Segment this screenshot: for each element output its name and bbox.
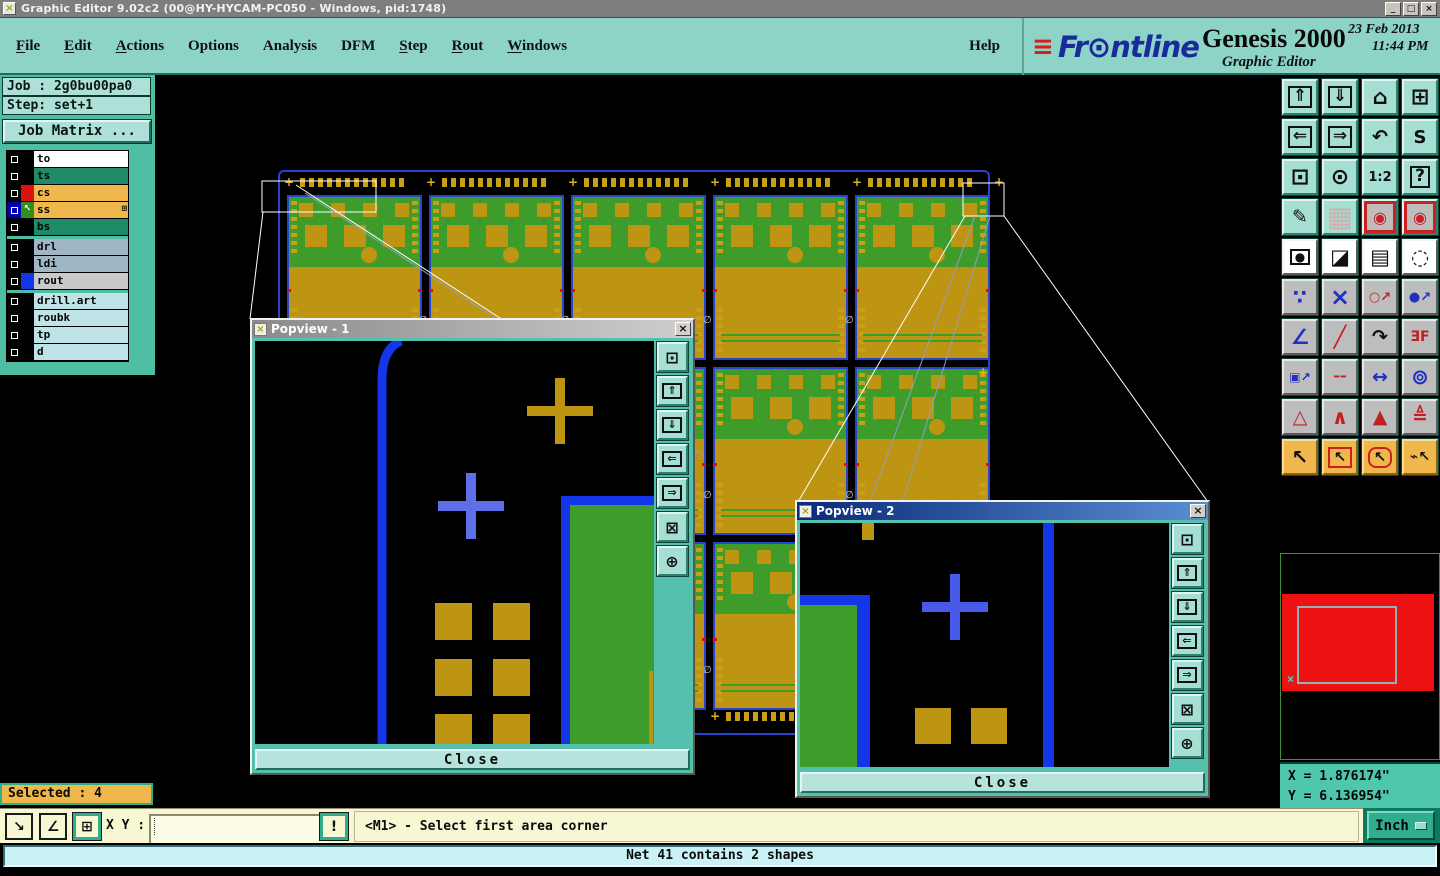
layer-visibility-checkbox[interactable] (7, 239, 21, 255)
layer-name: bs (34, 219, 128, 235)
active-layer-cursor-icon: ↖ (21, 202, 34, 218)
view-outline (1297, 606, 1397, 684)
origin-marker: × (1287, 672, 1294, 686)
layer-name: cs (34, 185, 128, 201)
layer-group: totscs↖ss⊞bs (7, 151, 128, 239)
layer-name: to (34, 151, 128, 167)
copy-screen-icon: ⇑ (1288, 86, 1312, 108)
surface-ops-button[interactable]: ⊚ (1402, 359, 1438, 395)
pan-right-button[interactable]: ⇒ (657, 478, 688, 508)
select-cross-marker (438, 473, 504, 539)
window-controls: _□× (1385, 2, 1440, 16)
snap-angle-button[interactable]: ∠ (39, 813, 67, 840)
pan-up-icon: ⇑ (1177, 565, 1196, 581)
brand-area: ≡ Fr⊙ntline Genesis 2000 23 Feb 2013 11:… (1026, 18, 1440, 75)
layer-visibility-checkbox[interactable] (7, 327, 21, 343)
frontline-logo: Fr⊙ntline (1058, 30, 1199, 64)
input-caret (154, 818, 155, 835)
menu-actions[interactable]: Actions (116, 38, 164, 55)
popview2-title: Popview - 2 (816, 504, 894, 518)
product-name: Genesis 2000 (1202, 24, 1346, 54)
pan-left-button[interactable]: ⇐ (657, 444, 688, 474)
pan-down-button[interactable]: ⇓ (1172, 592, 1203, 622)
layer-visibility-checkbox[interactable] (7, 202, 21, 218)
menu-analysis[interactable]: Analysis (263, 38, 317, 55)
screen-capture-button[interactable]: ⇓ (1322, 79, 1358, 115)
layer-row-bs[interactable]: bs (7, 219, 128, 235)
layer-color-swatch (21, 344, 34, 360)
menu-step[interactable]: Step (399, 38, 427, 55)
profile-path-icon: S (1414, 127, 1427, 148)
layer-row-d[interactable]: d (7, 344, 128, 360)
option-menu-icon (1415, 822, 1427, 830)
frontline-speedlines-icon: ≡ (1032, 32, 1054, 62)
grid-snap-button[interactable]: ⊞ (73, 813, 101, 840)
menu-bar: FileEditActionsOptionsAnalysisDFMStepRou… (0, 18, 1024, 75)
pad-square (435, 603, 472, 640)
menu-dfm[interactable]: DFM (341, 38, 375, 55)
select-single-button[interactable]: ↖ (1282, 439, 1318, 475)
close-button[interactable]: Close (800, 772, 1205, 793)
context-help-button[interactable]: ? (1402, 159, 1438, 195)
select-cross-marker (922, 574, 988, 640)
draw-slope-button[interactable]: ╱ (1322, 319, 1358, 355)
previous-view-icon: ↶ (1372, 126, 1388, 148)
zoom-center-icon: ⊕ (665, 552, 678, 571)
close-icon[interactable]: × (1421, 2, 1437, 16)
layer-visibility-checkbox[interactable] (7, 310, 21, 326)
popview1-title: Popview - 1 (271, 322, 349, 336)
delete-feature-icon: × (1330, 283, 1350, 311)
application-window: × Graphic Editor 9.02c2 (00@HY-HYCAM-PC0… (0, 0, 1440, 876)
zoom-fit-icon: ⊠ (1180, 700, 1193, 719)
copy-to-layer-button[interactable]: ▣↗ (1282, 359, 1318, 395)
add-triangle-axis-icon: ≜ (1412, 406, 1428, 428)
popview1-canvas[interactable] (255, 341, 654, 744)
zoom-center-button[interactable]: ⊙ (1322, 159, 1358, 195)
pan-down-icon: ⇓ (662, 417, 681, 433)
snap-diagonal-button[interactable]: ↘ (5, 813, 33, 840)
split-view-xy-icon: ⊞ (1411, 85, 1429, 110)
zoom-center-button[interactable]: ⊕ (1172, 728, 1203, 758)
layer-color-swatch (21, 168, 34, 184)
layer-group: drlldirout (7, 239, 128, 293)
layer-row-to[interactable]: to (7, 151, 128, 167)
pan-left-button[interactable]: ⇐ (1282, 119, 1318, 155)
app-icon: × (3, 2, 16, 15)
pad-square (971, 708, 1007, 744)
detach-view-button[interactable]: ⊡ (657, 342, 688, 372)
rout-bar (1043, 523, 1054, 767)
rotate-feature-button[interactable]: ↷ (1362, 319, 1398, 355)
alert-button[interactable]: ! (320, 813, 348, 840)
layer-visibility-checkbox[interactable] (7, 344, 21, 360)
net-highlight-icon: ◉ (1413, 208, 1427, 227)
line-style-icon: ╌ (1333, 365, 1346, 390)
layer-visibility-checkbox[interactable] (7, 256, 21, 272)
select-net-button[interactable]: ⌁↖ (1402, 439, 1438, 475)
right-toolbar: ⇑⇓⌂⊞⇐⇒↶S⊡⊙1:2?✎▦◉◉●◪▤◌∵×○↗●↗∠╱↷ƎF▣↗╌↔⊚△∧… (1280, 75, 1440, 808)
add-triangle-outline-button[interactable]: △ (1282, 399, 1318, 435)
popview2-toolbar: ⊡⇑⇓⇐⇒⊠⊕ (1169, 523, 1205, 767)
net-info-message: Net 41 contains 2 shapes (3, 845, 1437, 867)
close-icon[interactable]: × (675, 322, 691, 336)
zoom-ratio-1-2-button[interactable]: 1:2 (1362, 159, 1398, 195)
layer-visibility-checkbox[interactable] (7, 293, 21, 309)
pan-right-button[interactable]: ⇒ (1172, 660, 1203, 690)
zoom-center-icon: ⊕ (1180, 734, 1193, 753)
step-label: Step: set+1 (2, 96, 151, 115)
layer-color-swatch (21, 239, 34, 255)
layer-name: d (34, 344, 128, 360)
xy-input[interactable] (149, 814, 327, 845)
menu-options[interactable]: Options (188, 38, 239, 55)
screen-capture-icon: ⇓ (1328, 86, 1352, 108)
popview-window-1[interactable]: × Popview - 1 × (250, 318, 695, 775)
layer-row-ss[interactable]: ↖ss⊞ (7, 202, 128, 218)
home-view-button[interactable]: ⌂ (1362, 79, 1398, 115)
measure-angle-icon: ∠ (1291, 325, 1310, 349)
add-chevron-icon: ∧ (1332, 405, 1348, 429)
menu-help[interactable]: Help (969, 38, 1000, 55)
detach-view-icon: ⊡ (1180, 530, 1193, 549)
add-triangle-axis-button[interactable]: ≜ (1402, 399, 1438, 435)
add-chevron-button[interactable]: ∧ (1322, 399, 1358, 435)
zoom-center-button[interactable]: ⊕ (657, 546, 688, 576)
layer-compare-button[interactable]: ◪ (1322, 239, 1358, 275)
zoom-fit-icon: ⊡ (1291, 165, 1309, 190)
pad-square (435, 714, 472, 744)
gold-tab (862, 523, 874, 540)
layer-name: drl (34, 239, 128, 255)
rout-outline (857, 595, 870, 767)
window-title: Graphic Editor 9.02c2 (00@HY-HYCAM-PC050… (21, 2, 446, 15)
select-polygon-icon: ↖ (1368, 447, 1393, 468)
layer-compare-icon: ◪ (1330, 245, 1350, 269)
split-view-xy-button[interactable]: ⊞ (1402, 79, 1438, 115)
pan-up-button[interactable]: ⇑ (657, 376, 688, 406)
job-label: Job : 2g0bu00pa0 (2, 77, 151, 96)
pan-left-button[interactable]: ⇐ (1172, 626, 1203, 656)
select-rectangle-button[interactable]: ↖ (1322, 439, 1358, 475)
select-net-icon: ⌁↖ (1410, 449, 1430, 465)
popview-icon: × (254, 323, 267, 336)
popview-window-2[interactable]: × Popview - 2 × ⊡⇑⇓⇐⇒⊠⊕ (795, 500, 1210, 798)
layer-row-drill.art[interactable]: drill.art (7, 293, 128, 309)
pad-square (435, 659, 472, 696)
add-triangle-outline-icon: △ (1293, 406, 1308, 428)
zoom-fit-icon: ⊠ (665, 518, 678, 537)
popview1-toolbar: ⊡⇑⇓⇐⇒⊠⊕ (654, 341, 690, 744)
gold-cross-marker (527, 378, 593, 444)
detach-view-button[interactable]: ⊡ (1172, 524, 1203, 554)
layer-row-ldi[interactable]: ldi (7, 256, 128, 272)
menu-windows[interactable]: Windows (507, 38, 567, 55)
pad-square (493, 603, 530, 640)
zoom-fit-button[interactable]: ⊡ (1282, 159, 1318, 195)
pad-capture-icon: ◌ (1411, 245, 1429, 269)
pan-up-icon: ⇑ (662, 383, 681, 399)
layer-color-swatch (21, 327, 34, 343)
edit-tools-button[interactable]: ✎ (1282, 199, 1318, 235)
layer-row-tp[interactable]: tp (7, 327, 128, 343)
copy-point-button[interactable]: ●↗ (1402, 279, 1438, 315)
main-canvas[interactable]: ∅∅∅∅∅∅∅∅∅∅∅∅+++++++++++++++ × Popview - … (155, 75, 1280, 808)
draw-slope-icon: ╱ (1334, 325, 1347, 349)
pan-left-icon: ⇐ (1288, 126, 1312, 148)
layer-list: totscs↖ss⊞bsdrlldiroutdrill.artroubktpd (6, 150, 129, 362)
layer-color-swatch (21, 273, 34, 289)
layer-color-swatch (21, 151, 34, 167)
copper-region (570, 505, 654, 744)
pan-right-icon: ⇒ (662, 485, 681, 501)
add-triangle-filled-button[interactable]: ▲ (1362, 399, 1398, 435)
pad-square (493, 714, 530, 744)
surface-ops-icon: ⊚ (1411, 365, 1429, 389)
close-icon[interactable]: × (1190, 504, 1206, 518)
layer-name: rout (34, 273, 128, 289)
mirror-feature-button[interactable]: ƎF (1402, 319, 1438, 355)
top-bar: FileEditActionsOptionsAnalysisDFMStepRou… (0, 18, 1440, 75)
minimize-icon[interactable]: _ (1385, 2, 1401, 16)
add-triangle-filled-icon: ▲ (1373, 406, 1388, 428)
layer-visibility-checkbox[interactable] (7, 185, 21, 201)
layer-visibility-checkbox[interactable] (7, 219, 21, 235)
layer-name: tp (34, 327, 128, 343)
pan-down-button[interactable]: ⇓ (657, 410, 688, 440)
measure-angle-button[interactable]: ∠ (1282, 319, 1318, 355)
pan-right-icon: ⇒ (1328, 126, 1352, 148)
layer-color-swatch (21, 185, 34, 201)
close-button[interactable]: Close (255, 749, 690, 770)
tool-grid: ⇑⇓⌂⊞⇐⇒↶S⊡⊙1:2?✎▦◉◉●◪▤◌∵×○↗●↗∠╱↷ƎF▣↗╌↔⊚△∧… (1280, 77, 1440, 477)
prompt-message: <M1> - Select first area corner (354, 811, 1359, 842)
measure-ruler-button[interactable]: ▤ (1362, 239, 1398, 275)
measure-ruler-icon: ▤ (1370, 245, 1390, 269)
profile-path-button[interactable]: S (1402, 119, 1438, 155)
pan-right-icon: ⇒ (1177, 667, 1196, 683)
menu-rout[interactable]: Rout (452, 38, 484, 55)
layer-color-swatch (21, 310, 34, 326)
select-rectangle-icon: ↖ (1328, 447, 1353, 468)
xy-label: X Y : (106, 818, 145, 833)
previous-view-button[interactable]: ↶ (1362, 119, 1398, 155)
cross-probe-button[interactable]: ◉ (1362, 199, 1398, 235)
grid-mark-icon: ⊞ (122, 204, 127, 214)
measure-width-button[interactable]: ↔ (1362, 359, 1398, 395)
popview1-titlebar[interactable]: × Popview - 1 × (252, 320, 693, 338)
zoom-ratio-1-2-icon: 1:2 (1368, 170, 1391, 185)
sidebar: Job : 2g0bu00pa0 Step: set+1 Job Matrix … (0, 75, 155, 375)
select-single-icon: ↖ (1292, 445, 1309, 469)
detach-view-icon: ⊡ (665, 348, 678, 367)
layer-row-drl[interactable]: drl (7, 239, 128, 255)
select-feature-button[interactable]: ● (1282, 239, 1318, 275)
date-display: 23 Feb 2013 (1348, 22, 1420, 38)
net-endpoints-icon: ∵ (1293, 285, 1307, 309)
copy-screen-button[interactable]: ⇑ (1282, 79, 1318, 115)
select-polygon-button[interactable]: ↖ (1362, 439, 1398, 475)
grid-toggle-button[interactable]: ▦ (1322, 199, 1358, 235)
delete-feature-button[interactable]: × (1322, 279, 1358, 315)
copy-to-layer-icon: ▣↗ (1289, 370, 1310, 384)
layer-name: ss⊞ (34, 202, 128, 218)
rotate-feature-icon: ↷ (1372, 326, 1388, 348)
context-help-icon: ? (1410, 166, 1430, 188)
overview-preview[interactable]: × (1280, 553, 1440, 760)
message-bar: Net 41 contains 2 shapes (0, 843, 1440, 870)
menu-file[interactable]: File (16, 38, 40, 55)
restore-icon[interactable]: □ (1403, 2, 1419, 16)
pan-right-button[interactable]: ⇒ (1322, 119, 1358, 155)
copper-region (800, 605, 857, 767)
pan-left-icon: ⇐ (662, 451, 681, 467)
edit-tools-icon: ✎ (1292, 206, 1308, 228)
selected-count-badge: Selected : 4 (0, 783, 153, 805)
select-feature-icon: ● (1290, 249, 1310, 266)
time-display: 11:44 PM (1372, 39, 1428, 55)
pad-capture-button[interactable]: ◌ (1402, 239, 1438, 275)
menu-edit[interactable]: Edit (64, 38, 92, 55)
zoom-center-icon: ⊙ (1331, 165, 1349, 190)
measure-width-icon: ↔ (1372, 366, 1388, 388)
layer-name: ts (34, 168, 128, 184)
zoom-fit-button[interactable]: ⊠ (1172, 694, 1203, 724)
pan-left-icon: ⇐ (1177, 633, 1196, 649)
popview2-titlebar[interactable]: × Popview - 2 × (797, 502, 1208, 520)
layer-row-ts[interactable]: ts (7, 168, 128, 184)
move-point-button[interactable]: ○↗ (1362, 279, 1398, 315)
layer-name: roubk (34, 310, 128, 326)
units-segment: Inch (1363, 808, 1440, 843)
move-point-icon: ○↗ (1369, 290, 1391, 305)
layer-group: drill.artroubktpd (7, 293, 128, 360)
gold-sliver (649, 671, 653, 744)
pan-down-icon: ⇓ (1177, 599, 1196, 615)
units-label: Inch (1375, 818, 1409, 834)
job-matrix-button[interactable]: Job Matrix ... (3, 120, 151, 143)
pan-up-button[interactable]: ⇑ (1172, 558, 1203, 588)
zoom-fit-button[interactable]: ⊠ (657, 512, 688, 542)
units-dropdown[interactable]: Inch (1367, 811, 1435, 840)
layer-color-swatch (21, 293, 34, 309)
home-view-icon: ⌂ (1372, 85, 1387, 109)
net-endpoints-button[interactable]: ∵ (1282, 279, 1318, 315)
popview2-canvas[interactable] (800, 523, 1169, 767)
pad-square (493, 659, 530, 696)
mirror-feature-icon: ƎF (1410, 329, 1429, 345)
layer-name: drill.art (34, 293, 128, 309)
cross-probe-icon: ◉ (1373, 208, 1387, 227)
grid-toggle-icon: ▦ (1327, 202, 1353, 233)
layer-row-roubk[interactable]: roubk (7, 310, 128, 326)
pad-square (915, 708, 951, 744)
layer-visibility-checkbox[interactable] (7, 273, 21, 289)
line-style-button[interactable]: ╌ (1322, 359, 1358, 395)
product-subtitle: Graphic Editor (1222, 54, 1316, 71)
layer-visibility-checkbox[interactable] (7, 151, 21, 167)
copy-point-icon: ●↗ (1409, 290, 1431, 305)
popview-icon: × (799, 505, 812, 518)
layer-visibility-checkbox[interactable] (7, 168, 21, 184)
layer-row-rout[interactable]: rout (7, 273, 128, 289)
layer-color-swatch (21, 219, 34, 235)
layer-color-swatch (21, 256, 34, 272)
net-highlight-button[interactable]: ◉ (1402, 199, 1438, 235)
layer-name: ldi (34, 256, 128, 272)
layer-row-cs[interactable]: cs (7, 185, 128, 201)
window-titlebar[interactable]: × Graphic Editor 9.02c2 (00@HY-HYCAM-PC0… (0, 0, 1440, 18)
status-bar: X Y : <M1> - Select first area corner ↘∠… (0, 808, 1363, 843)
cursor-coordinates: X = 1.876174" Y = 6.136954" (1280, 762, 1440, 808)
